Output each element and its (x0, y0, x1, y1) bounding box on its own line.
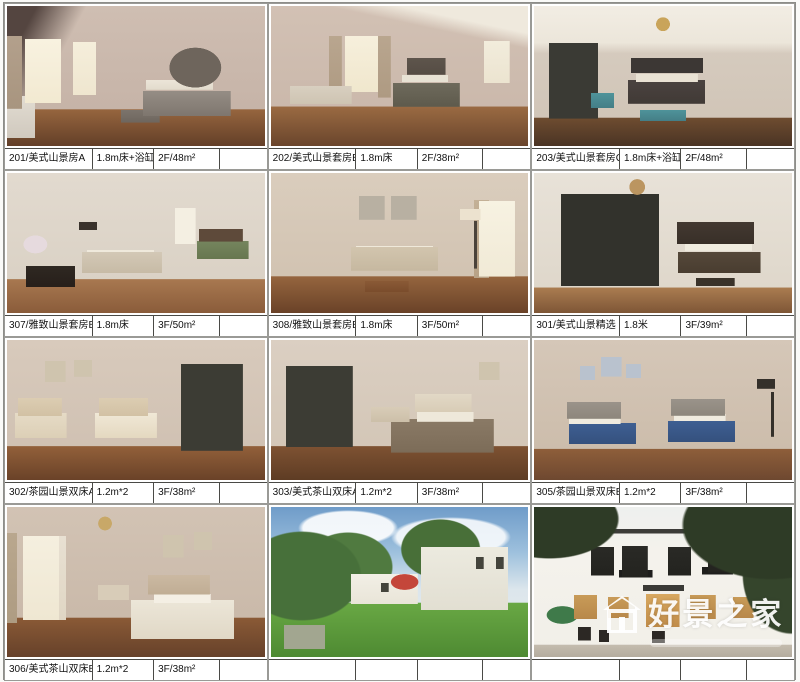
room-photo (7, 6, 265, 146)
room-name: 307/雅致山景套房B (5, 316, 93, 336)
house-logo-icon (602, 595, 642, 633)
watermark-text: 好景之家 (648, 599, 784, 630)
room-name: 303/美式茶山双床A (269, 483, 357, 503)
room-name: 302/茶园山景双床A (5, 483, 93, 503)
room-info-bar: 202/美式山景套房B 1.8m床 2F/38m² (269, 148, 531, 169)
room-floor-area (418, 660, 483, 680)
room-floor-area: 2F/48m² (154, 149, 219, 169)
room-floor-area: 3F/38m² (681, 483, 746, 503)
room-info-bar (269, 659, 531, 680)
room-listing-sheet: 201/美式山景房A 1.8m床+浴缸 2F/48m² 202/美式山景套房B … (0, 0, 800, 682)
room-name: 201/美式山景房A (5, 149, 93, 169)
room-card-302: 302/茶园山景双床A 1.2m*2 3F/38m² (4, 337, 268, 504)
room-bed: 1.8m床 (356, 149, 417, 169)
room-name: 301/美式山景精选 (532, 316, 620, 336)
room-card-307: 307/雅致山景套房B 1.8m床 3F/50m² (4, 170, 268, 337)
room-photo (271, 6, 529, 146)
room-photo (534, 173, 792, 313)
room-info-bar: 305/茶园山景双床B 1.2m*2 3F/38m² (532, 482, 794, 503)
room-bed: 1.8米 (620, 316, 681, 336)
room-extra (220, 660, 267, 680)
room-card-306: 306/美式茶山双床B 1.2m*2 3F/38m² (4, 504, 268, 681)
watermark-subtext (650, 639, 782, 647)
room-info-bar: 308/雅致山景套房B 1.8m床 3F/50m² (269, 315, 531, 336)
room-extra (747, 483, 794, 503)
room-photo (534, 6, 792, 146)
room-bed (356, 660, 417, 680)
room-info-bar: 301/美式山景精选 1.8米 3F/39m² (532, 315, 794, 336)
room-bed: 1.8m床 (356, 316, 417, 336)
room-floor-area: 3F/39m² (681, 316, 746, 336)
room-floor-area: 3F/38m² (154, 483, 219, 503)
room-photo (7, 507, 265, 657)
room-info-bar: 201/美式山景房A 1.8m床+浴缸 2F/48m² (5, 148, 267, 169)
garden-courtyard-photo (271, 507, 529, 657)
room-info-bar: 306/美式茶山双床B 1.2m*2 3F/38m² (5, 659, 267, 680)
room-name (532, 660, 620, 680)
room-card-201: 201/美式山景房A 1.8m床+浴缸 2F/48m² (4, 3, 268, 170)
room-card-203: 203/美式山景套房C 1.8m床+浴缸 2F/48m² (531, 3, 795, 170)
room-bed (620, 660, 681, 680)
room-extra (483, 316, 530, 336)
room-extra (483, 149, 530, 169)
room-name: 306/美式茶山双床B (5, 660, 93, 680)
room-card-305: 305/茶园山景双床B 1.2m*2 3F/38m² (531, 337, 795, 504)
room-floor-area: 3F/50m² (418, 316, 483, 336)
room-bed: 1.2m*2 (93, 483, 154, 503)
room-floor-area: 2F/48m² (681, 149, 746, 169)
room-info-bar: 302/茶园山景双床A 1.2m*2 3F/38m² (5, 482, 267, 503)
room-extra (747, 149, 794, 169)
room-extra (220, 316, 267, 336)
room-card-301: 301/美式山景精选 1.8米 3F/39m² (531, 170, 795, 337)
room-bed: 1.8m床 (93, 316, 154, 336)
room-name (269, 660, 357, 680)
photo-card-garden-courtyard (268, 504, 532, 681)
room-floor-area: 3F/38m² (154, 660, 219, 680)
room-info-bar (532, 659, 794, 680)
room-bed: 1.2m*2 (93, 660, 154, 680)
room-name: 203/美式山景套房C (532, 149, 620, 169)
room-floor-area (681, 660, 746, 680)
room-photo (271, 340, 529, 480)
room-bed: 1.2m*2 (356, 483, 417, 503)
room-photo (7, 173, 265, 313)
room-info-bar: 303/美式茶山双床A 1.2m*2 3F/38m² (269, 482, 531, 503)
room-bed: 1.8m床+浴缸 (620, 149, 681, 169)
room-name: 308/雅致山景套房B (269, 316, 357, 336)
room-extra (220, 149, 267, 169)
room-photo-grid: 201/美式山景房A 1.8m床+浴缸 2F/48m² 202/美式山景套房B … (3, 2, 796, 680)
building-exterior-photo: 好景之家 (534, 507, 792, 657)
room-name: 202/美式山景套房B (269, 149, 357, 169)
room-photo (271, 173, 529, 313)
room-info-bar: 203/美式山景套房C 1.8m床+浴缸 2F/48m² (532, 148, 794, 169)
room-card-308: 308/雅致山景套房B 1.8m床 3F/50m² (268, 170, 532, 337)
photo-card-building-exterior: 好景之家 (531, 504, 795, 681)
room-photo (534, 340, 792, 480)
room-bed: 1.2m*2 (620, 483, 681, 503)
watermark: 好景之家 (602, 595, 784, 633)
room-extra (483, 660, 530, 680)
room-bed: 1.8m床+浴缸 (93, 149, 154, 169)
room-name: 305/茶园山景双床B (532, 483, 620, 503)
room-photo (7, 340, 265, 480)
room-extra (747, 660, 794, 680)
room-card-303: 303/美式茶山双床A 1.2m*2 3F/38m² (268, 337, 532, 504)
room-card-202: 202/美式山景套房B 1.8m床 2F/38m² (268, 3, 532, 170)
room-floor-area: 3F/50m² (154, 316, 219, 336)
room-extra (483, 483, 530, 503)
room-floor-area: 3F/38m² (418, 483, 483, 503)
room-info-bar: 307/雅致山景套房B 1.8m床 3F/50m² (5, 315, 267, 336)
room-extra (220, 483, 267, 503)
room-extra (747, 316, 794, 336)
room-floor-area: 2F/38m² (418, 149, 483, 169)
